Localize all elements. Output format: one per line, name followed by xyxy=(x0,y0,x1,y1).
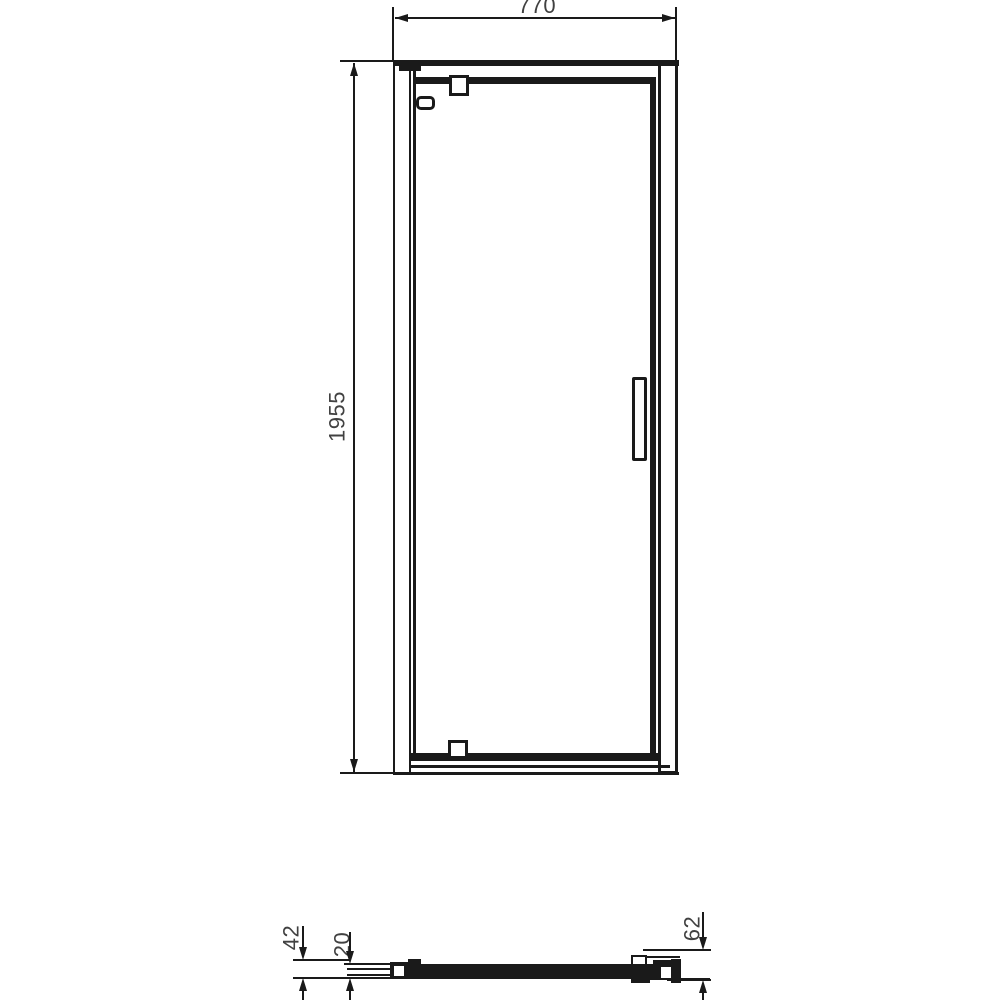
right-wall-profile xyxy=(658,60,678,774)
dim-overall-height-line xyxy=(353,63,355,772)
dim-arrow-down xyxy=(346,951,354,964)
dim-glass-inset-label: 20 xyxy=(331,915,356,975)
top-frame-bar xyxy=(393,60,679,66)
top-hinge-block xyxy=(449,75,469,96)
technical-drawing-canvas: 770 1955 xyxy=(0,0,1000,1000)
dim-extension-line xyxy=(340,60,393,62)
door-handle xyxy=(632,377,647,461)
left-profile-notch xyxy=(394,966,404,976)
dim-arrow-up xyxy=(350,63,358,76)
bottom-sill-line xyxy=(409,765,670,768)
dim-extension-line xyxy=(340,772,393,774)
dim-overall-height-label: 1955 xyxy=(326,372,351,462)
bottom-hinge-block xyxy=(448,740,468,759)
dim-arrow-down xyxy=(299,947,307,960)
glass-panel-section xyxy=(413,964,658,979)
dim-line xyxy=(302,926,304,947)
dim-line xyxy=(702,993,704,1000)
dim-extension-line xyxy=(392,7,394,60)
dim-arrow-down xyxy=(699,937,707,950)
dim-arrow-up xyxy=(346,978,354,991)
top-pivot-hinge xyxy=(416,96,435,110)
glass-left-edge xyxy=(413,66,416,760)
dim-extension-line xyxy=(675,7,677,60)
dim-line xyxy=(702,912,704,937)
dim-arrow-right xyxy=(662,14,675,22)
dim-arrow-up xyxy=(299,978,307,991)
dim-line xyxy=(349,932,351,951)
top-pivot-bracket xyxy=(399,60,421,71)
right-profile-notch-top xyxy=(631,955,647,966)
dim-overall-width-label: 770 xyxy=(487,0,587,18)
door-right-stile xyxy=(650,77,656,760)
bottom-frame-line xyxy=(393,772,679,775)
right-profile-top-line xyxy=(646,956,680,958)
dim-arrow-left xyxy=(395,14,408,22)
dim-extension-line xyxy=(293,977,393,979)
left-wall-profile xyxy=(393,60,411,774)
dim-arrow-down xyxy=(350,759,358,772)
dim-line xyxy=(349,991,351,1000)
dim-overall-width-line xyxy=(395,17,675,19)
dim-line xyxy=(302,991,304,1000)
dim-arrow-up xyxy=(699,980,707,993)
